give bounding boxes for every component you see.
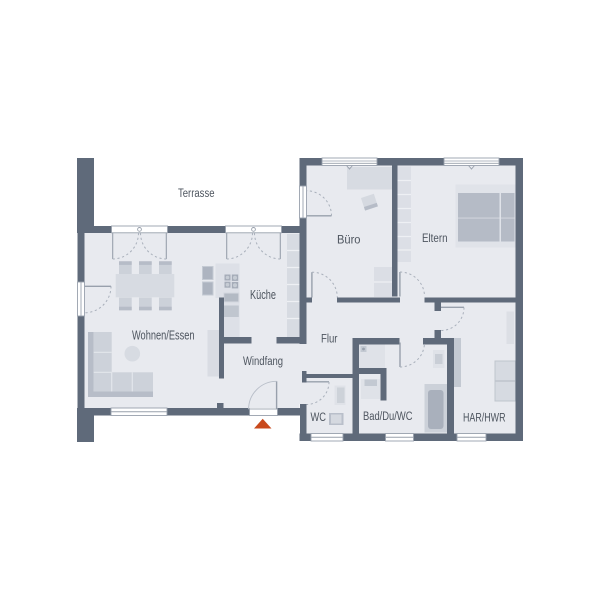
svg-text:Flur: Flur: [321, 333, 338, 345]
svg-text:Windfang: Windfang: [243, 356, 283, 368]
svg-text:Büro: Büro: [337, 233, 361, 247]
svg-text:Eltern: Eltern: [422, 231, 448, 245]
svg-text:Bad/Du/WC: Bad/Du/WC: [363, 411, 413, 423]
svg-text:Wohnen/Essen: Wohnen/Essen: [132, 329, 195, 343]
svg-text:HAR/HWR: HAR/HWR: [463, 413, 506, 425]
svg-text:Küche: Küche: [250, 288, 276, 302]
svg-text:Terrasse: Terrasse: [178, 188, 215, 200]
svg-text:WC: WC: [311, 412, 327, 424]
